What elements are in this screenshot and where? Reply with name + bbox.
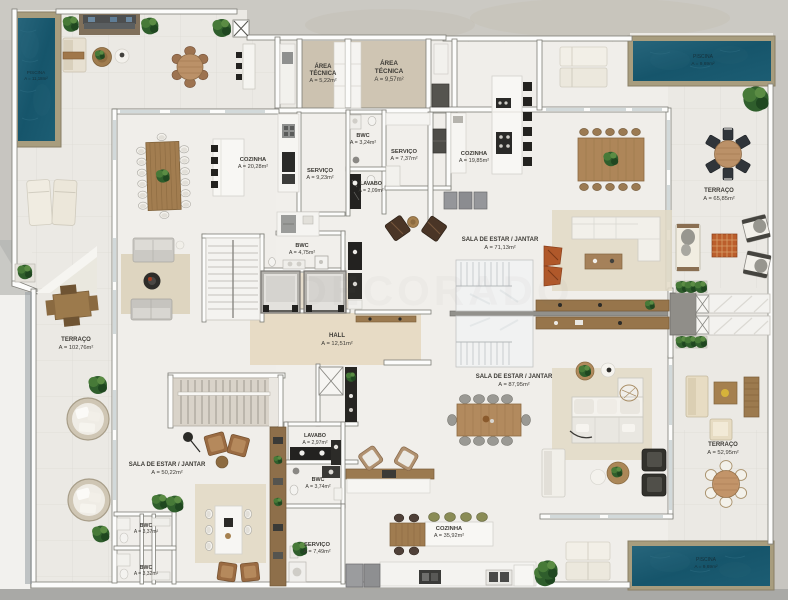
svg-text:SERVIÇO: SERVIÇO [391, 149, 417, 155]
svg-text:PISCINA: PISCINA [27, 70, 46, 75]
svg-text:PISCINA: PISCINA [696, 557, 717, 563]
svg-text:BWC: BWC [356, 133, 369, 139]
svg-text:TÉCNICA: TÉCNICA [310, 69, 337, 77]
svg-text:A = 3,24m²: A = 3,24m² [350, 140, 376, 146]
svg-text:A = 50,22m²: A = 50,22m² [151, 470, 182, 476]
svg-text:A = 2,09m²: A = 2,09m² [358, 188, 384, 194]
svg-text:A = 35,92m²: A = 35,92m² [434, 533, 464, 539]
svg-text:BWC: BWC [312, 477, 325, 483]
svg-text:COZINHA: COZINHA [436, 526, 463, 532]
svg-text:COZINHA: COZINHA [461, 151, 488, 157]
svg-text:BWC: BWC [295, 243, 308, 249]
svg-text:SALA DE ESTAR / JANTAR: SALA DE ESTAR / JANTAR [476, 374, 553, 380]
svg-text:TERRAÇO: TERRAÇO [708, 442, 738, 448]
svg-text:A = 12,51m²: A = 12,51m² [321, 341, 352, 347]
svg-text:A = 71,13m²: A = 71,13m² [484, 245, 515, 251]
svg-text:TÉCNICA: TÉCNICA [375, 66, 404, 75]
svg-text:TERRAÇO: TERRAÇO [704, 188, 734, 194]
svg-text:A = 3,37m²: A = 3,37m² [134, 529, 159, 535]
svg-text:SERVIÇO: SERVIÇO [304, 542, 330, 548]
svg-text:A = 9,69m²: A = 9,69m² [691, 61, 715, 67]
svg-text:SALA DE ESTAR / JANTAR: SALA DE ESTAR / JANTAR [129, 462, 206, 468]
svg-text:ÁREA: ÁREA [380, 58, 398, 67]
svg-text:ÁREA: ÁREA [314, 63, 332, 70]
svg-text:TERRAÇO: TERRAÇO [61, 337, 91, 343]
svg-text:A = 3,74m²: A = 3,74m² [305, 484, 331, 490]
svg-text:A = 7,37m²: A = 7,37m² [390, 156, 417, 162]
svg-text:A = 2,97m²: A = 2,97m² [302, 440, 328, 446]
svg-text:A = 52,95m²: A = 52,95m² [707, 450, 738, 456]
svg-text:A = 9,23m²: A = 9,23m² [306, 175, 333, 181]
svg-text:A = 4,75m²: A = 4,75m² [289, 250, 315, 256]
svg-text:COZINHA: COZINHA [240, 157, 267, 163]
svg-text:A = 102,76m²: A = 102,76m² [59, 345, 94, 351]
svg-text:A = 20,28m²: A = 20,28m² [238, 164, 268, 170]
svg-text:PISCINA: PISCINA [693, 54, 714, 60]
svg-text:SERVIÇO: SERVIÇO [307, 168, 333, 174]
svg-text:LAVABO: LAVABO [360, 181, 382, 187]
svg-text:DECORADO: DECORADO [296, 267, 573, 314]
svg-text:A = 11,18m²: A = 11,18m² [24, 76, 48, 81]
svg-text:A = 65,85m²: A = 65,85m² [703, 196, 734, 202]
svg-text:A = 5,22m²: A = 5,22m² [309, 78, 336, 84]
svg-text:A = 19,85m²: A = 19,85m² [459, 158, 489, 164]
svg-text:HALL: HALL [329, 333, 345, 339]
svg-text:A = 7,49m²: A = 7,49m² [303, 549, 330, 555]
svg-text:A = 9,57m²: A = 9,57m² [374, 77, 403, 83]
svg-text:A = 3,32m²: A = 3,32m² [134, 571, 159, 577]
svg-text:SALA DE ESTAR / JANTAR: SALA DE ESTAR / JANTAR [462, 237, 539, 243]
svg-text:A = 9,69m²: A = 9,69m² [694, 564, 718, 570]
svg-text:A = 87,95m²: A = 87,95m² [498, 382, 529, 388]
svg-text:LAVABO: LAVABO [304, 433, 326, 439]
